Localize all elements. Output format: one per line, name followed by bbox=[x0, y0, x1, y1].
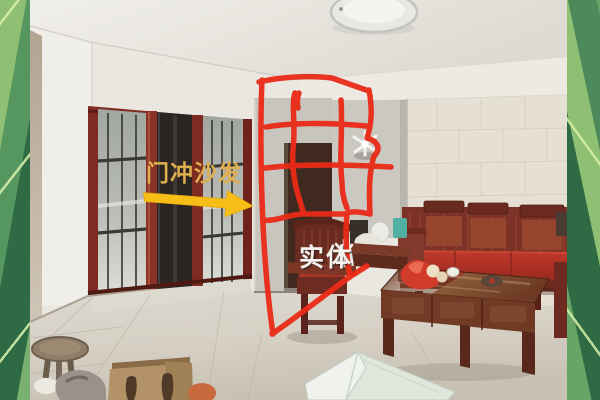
drawer3 bbox=[490, 306, 526, 322]
decorative-border-left bbox=[0, 0, 30, 400]
annotated-living-room-screenshot: 门冲沙发 实体 实体 bbox=[0, 0, 600, 400]
drawer bbox=[392, 298, 424, 314]
drawer2 bbox=[440, 302, 474, 318]
headrest-cap2 bbox=[468, 203, 508, 214]
door-frame-right bbox=[243, 119, 252, 279]
cream-item2 bbox=[437, 272, 448, 283]
door-clash-label: 门冲沙发 bbox=[146, 160, 242, 187]
annotation-grid-h2 bbox=[265, 165, 391, 168]
bag-handle bbox=[126, 376, 137, 400]
carved-panel2 bbox=[470, 218, 506, 248]
table-leg3 bbox=[460, 325, 470, 368]
armchair-stretcher bbox=[303, 320, 343, 325]
entity-label: 实体 bbox=[299, 243, 353, 272]
table-leg bbox=[383, 318, 394, 357]
ceiling-light bbox=[331, 0, 417, 35]
white-cloth bbox=[34, 378, 58, 394]
carved-panel bbox=[426, 216, 462, 246]
edge-armrest bbox=[554, 262, 568, 338]
teal-box bbox=[393, 218, 407, 238]
ashtray-content bbox=[489, 278, 495, 284]
annotation-grid-v1b bbox=[297, 93, 299, 108]
living-room-photo: 门冲沙发 实体 实体 bbox=[30, 0, 568, 400]
headrest-cap bbox=[424, 201, 464, 212]
bag-handle2 bbox=[162, 373, 174, 400]
decorative-border-right bbox=[567, 0, 600, 400]
paper-bag bbox=[108, 357, 193, 400]
wall-corner-strip bbox=[30, 30, 42, 324]
armchair-leg2 bbox=[337, 296, 344, 334]
teacup bbox=[447, 268, 459, 277]
